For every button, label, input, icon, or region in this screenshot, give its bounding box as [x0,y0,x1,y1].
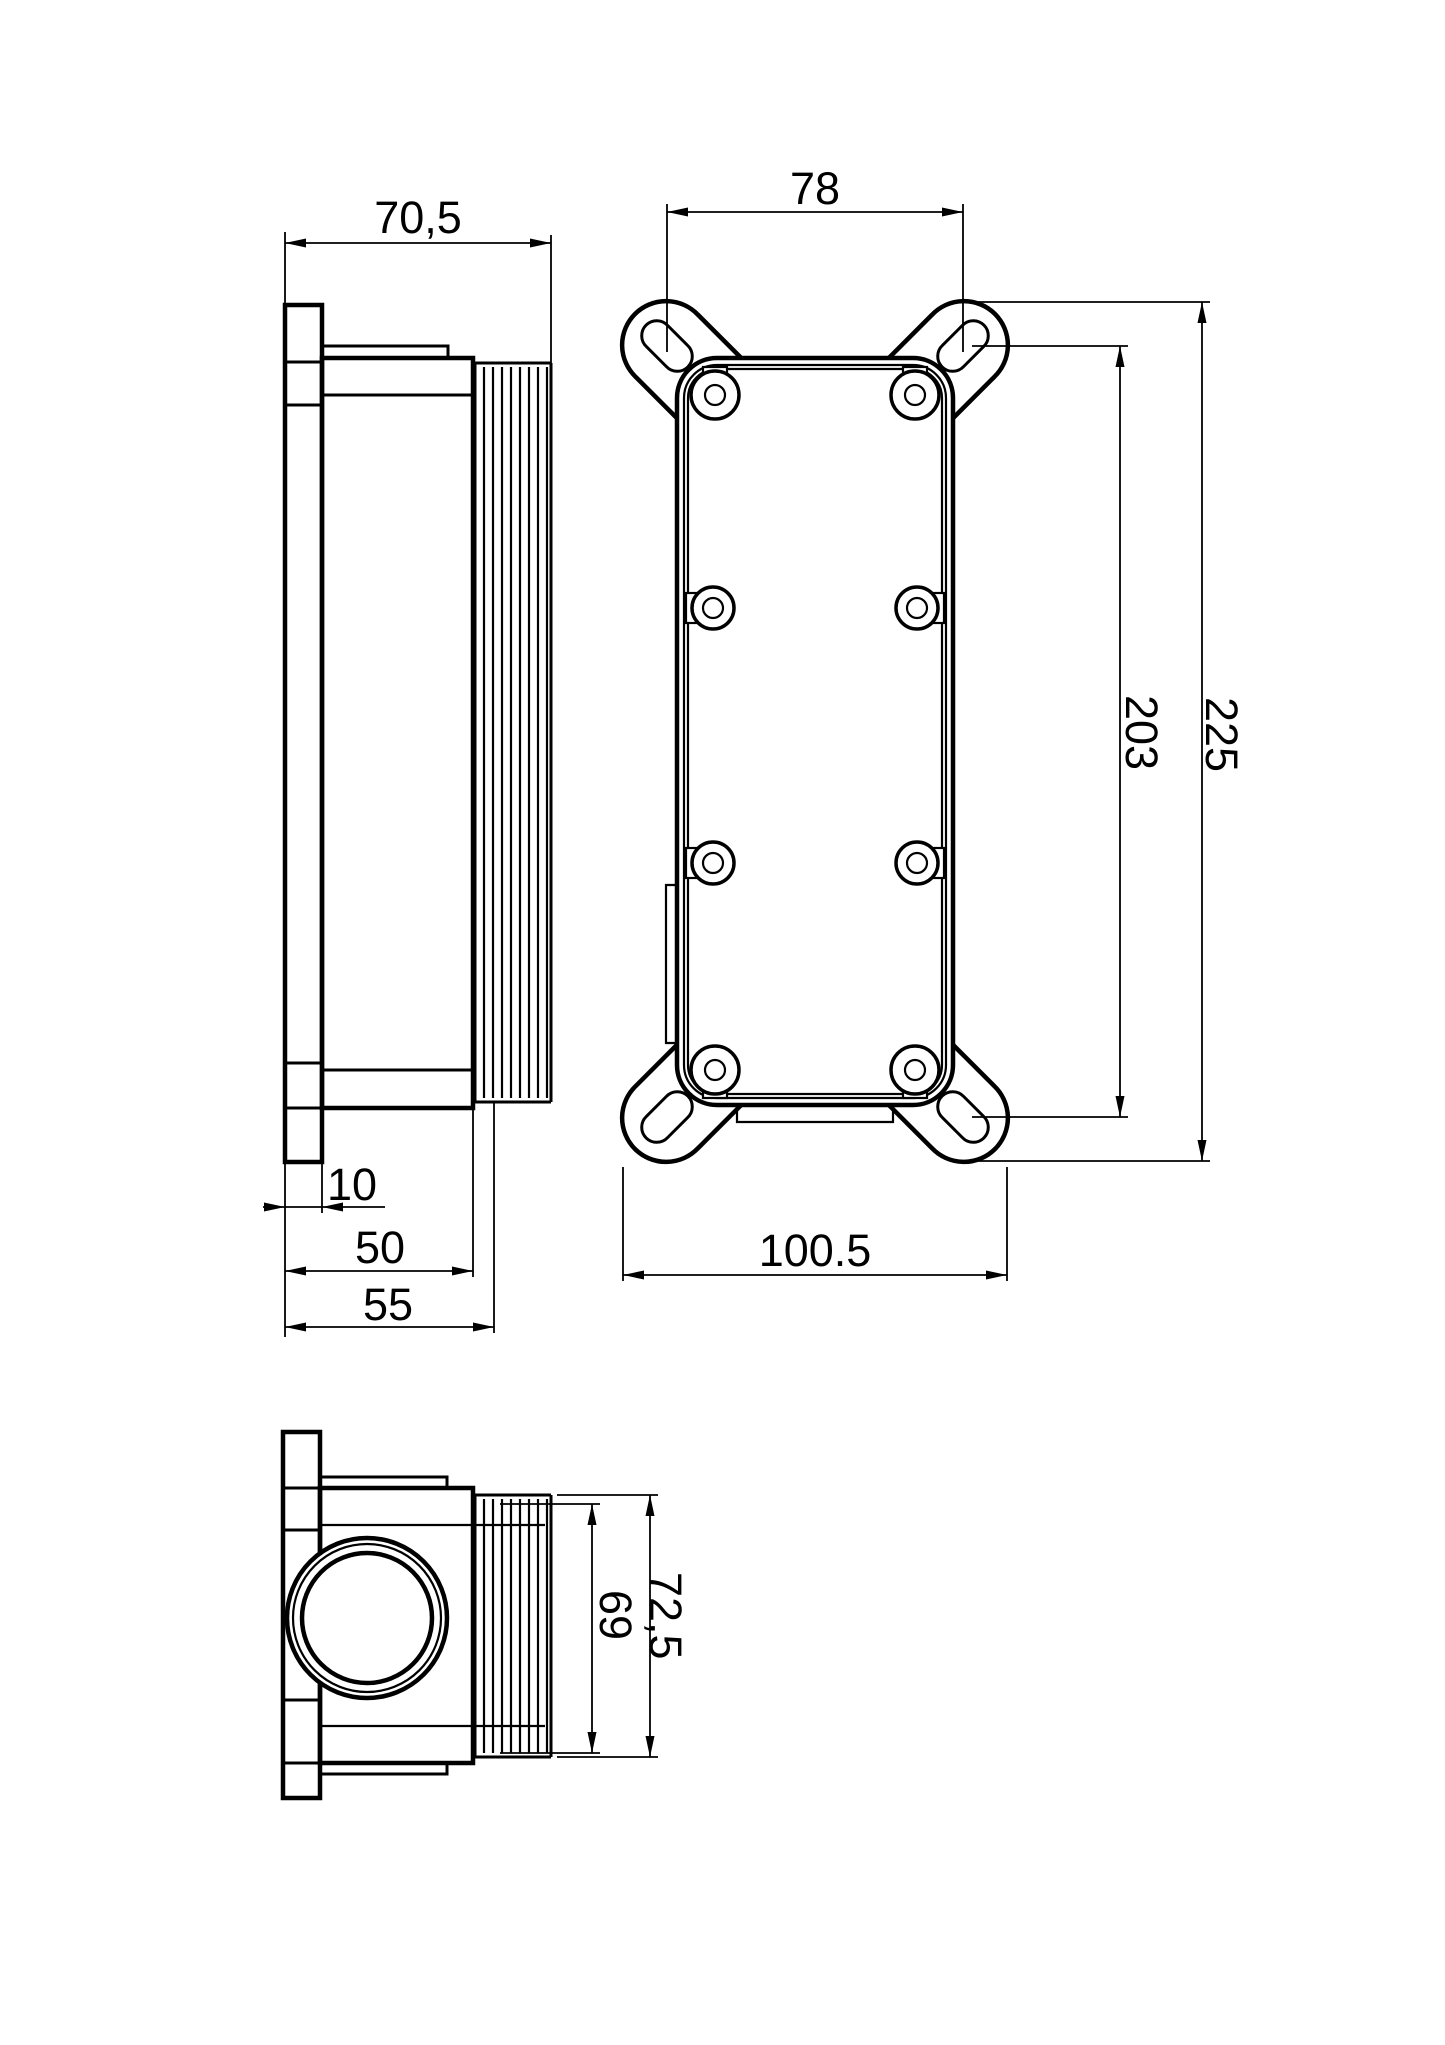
screw-boss [691,371,739,419]
dim-body-depth-label: 50 [355,1222,405,1273]
technical-drawing: 70,5 10 50 55 [0,0,1445,2045]
screw-boss [896,587,938,629]
front-box-outline [677,358,953,1105]
pipe-boss-outer-circle [287,1538,447,1698]
dim-end-overall-height-label: 72,5 [640,1572,691,1660]
dim-overall-width-label: 100.5 [759,1225,872,1276]
dim-slot-spacing-width-label: 78 [790,163,840,214]
screw-boss [692,587,734,629]
screw-boss [691,1046,739,1094]
dim-overall-height-label: 225 [1196,697,1247,772]
dim-flange-thickness-label: 10 [327,1159,377,1210]
screw-boss [896,842,938,884]
dim-overall-depth-label: 55 [363,1279,413,1330]
drawing-page: 70,5 10 50 55 [0,0,1445,2045]
dim-slot-spacing-height-label: 203 [1116,695,1167,770]
screw-boss [891,1046,939,1094]
screw-boss [891,371,939,419]
screw-boss [692,842,734,884]
dim-side-width-label: 70,5 [374,192,462,243]
dim-end-body-height-label: 69 [590,1590,641,1640]
